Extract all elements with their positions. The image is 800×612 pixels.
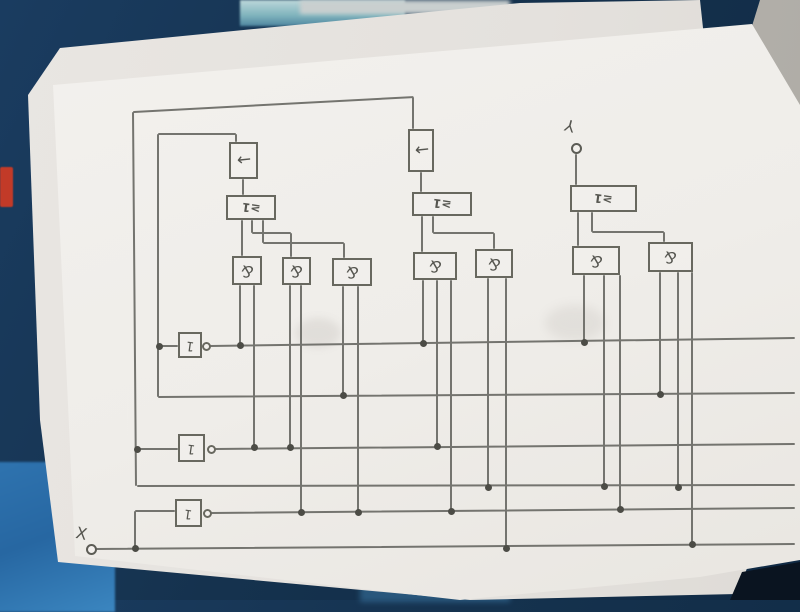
wire-segment — [253, 285, 255, 447]
or-gate-box: ≥1 — [570, 185, 637, 212]
ff-symbol: ← — [414, 141, 428, 159]
ff-symbol: ← — [237, 151, 251, 169]
wire-segment — [603, 275, 605, 486]
wire-segment — [505, 278, 507, 548]
wire-segment — [343, 243, 345, 258]
junction-dot — [156, 343, 163, 350]
wire-segment — [433, 232, 494, 234]
and-symbol: & — [428, 257, 443, 275]
wire-segment — [592, 231, 664, 233]
and-gate-box: & — [232, 256, 262, 285]
wire-segment — [487, 278, 489, 487]
inverter-output-bubble — [202, 342, 211, 351]
wire-segment — [157, 134, 159, 397]
wire-segment — [577, 212, 579, 246]
and-symbol: & — [240, 262, 255, 280]
wire-segment — [235, 134, 237, 142]
junction-dot — [298, 509, 305, 516]
junction-dot — [503, 545, 510, 552]
flip-flop-box: ← — [229, 142, 258, 179]
wire-segment — [242, 179, 244, 195]
junction-dot — [448, 508, 455, 515]
junction-dot — [251, 444, 258, 451]
circuit-layer: ←←≥1≥1≥1&&&&&&&111XY — [0, 0, 800, 600]
or-symbol: ≥1 — [241, 200, 261, 214]
wire-segment — [432, 216, 434, 233]
x-terminal-circle — [86, 544, 97, 555]
and-gate-box: & — [413, 252, 457, 280]
junction-dot — [581, 339, 588, 346]
wire-segment — [421, 216, 423, 252]
wire-segment — [412, 97, 414, 129]
and-symbol: & — [345, 263, 360, 281]
wire-segment — [158, 133, 236, 135]
junction-dot — [675, 484, 682, 491]
inverter-box: 1 — [175, 499, 202, 527]
or-symbol: ≥1 — [594, 191, 614, 205]
wire-segment — [132, 112, 137, 486]
wire-segment — [134, 511, 136, 548]
wire-segment — [583, 275, 585, 342]
and-symbol: & — [289, 262, 304, 280]
wire-segment — [262, 220, 264, 243]
wire-segment — [290, 233, 292, 257]
wire-segment — [300, 285, 302, 512]
wire-segment — [691, 272, 693, 544]
not-symbol: 1 — [183, 506, 193, 520]
y-signal-label: Y — [563, 115, 577, 136]
wire-segment — [575, 154, 577, 185]
and-gate-box: & — [282, 257, 311, 285]
wire-segment — [357, 286, 359, 512]
wire-segment — [239, 285, 241, 345]
inverter-box: 1 — [178, 434, 205, 462]
wire-segment — [137, 484, 795, 487]
x-signal-label: X — [74, 523, 89, 544]
flip-flop-box: ← — [408, 129, 434, 172]
wire-segment — [135, 510, 175, 512]
photo-of-hand-drawn-logic-circuit: { "scene": { "description": "photo of a … — [0, 0, 800, 600]
wire-segment — [591, 212, 593, 232]
junction-dot — [689, 541, 696, 548]
junction-dot — [355, 509, 362, 516]
wire-segment — [493, 233, 495, 249]
junction-dot — [657, 391, 664, 398]
wire-segment — [663, 232, 665, 242]
wire-segment — [422, 280, 424, 343]
junction-dot — [134, 446, 141, 453]
junction-dot — [132, 545, 139, 552]
wire-segment — [420, 172, 422, 192]
junction-dot — [237, 342, 244, 349]
wire-segment — [619, 275, 621, 509]
and-gate-box: & — [332, 258, 372, 286]
inverter-output-bubble — [203, 509, 212, 518]
and-symbol: & — [487, 255, 502, 273]
wire-segment — [210, 337, 795, 347]
not-symbol: 1 — [185, 338, 195, 352]
wire-segment — [137, 448, 178, 450]
y-terminal-circle — [571, 143, 582, 154]
junction-dot — [340, 392, 347, 399]
junction-dot — [287, 444, 294, 451]
and-gate-box: & — [572, 246, 620, 275]
wire-segment — [263, 242, 344, 244]
inverter-output-bubble — [207, 445, 216, 454]
junction-dot — [434, 443, 441, 450]
or-symbol: ≥1 — [432, 197, 452, 211]
wire-segment — [289, 285, 291, 447]
junction-dot — [617, 506, 624, 513]
and-symbol: & — [589, 252, 604, 270]
wire-segment — [450, 280, 452, 511]
junction-dot — [485, 484, 492, 491]
not-symbol: 1 — [186, 441, 196, 455]
or-gate-box: ≥1 — [226, 195, 276, 220]
wire-segment — [252, 232, 291, 234]
or-gate-box: ≥1 — [412, 192, 472, 216]
wire-segment — [436, 280, 438, 446]
and-symbol: & — [663, 248, 678, 266]
junction-dot — [420, 340, 427, 347]
wire-segment — [659, 272, 661, 394]
inverter-box: 1 — [178, 332, 202, 358]
and-gate-box: & — [475, 249, 513, 278]
junction-dot — [601, 483, 608, 490]
wire-segment — [241, 220, 243, 256]
wire-segment — [677, 272, 679, 487]
wire-segment — [133, 96, 414, 113]
wire-segment — [342, 286, 344, 395]
and-gate-box: & — [648, 242, 693, 272]
